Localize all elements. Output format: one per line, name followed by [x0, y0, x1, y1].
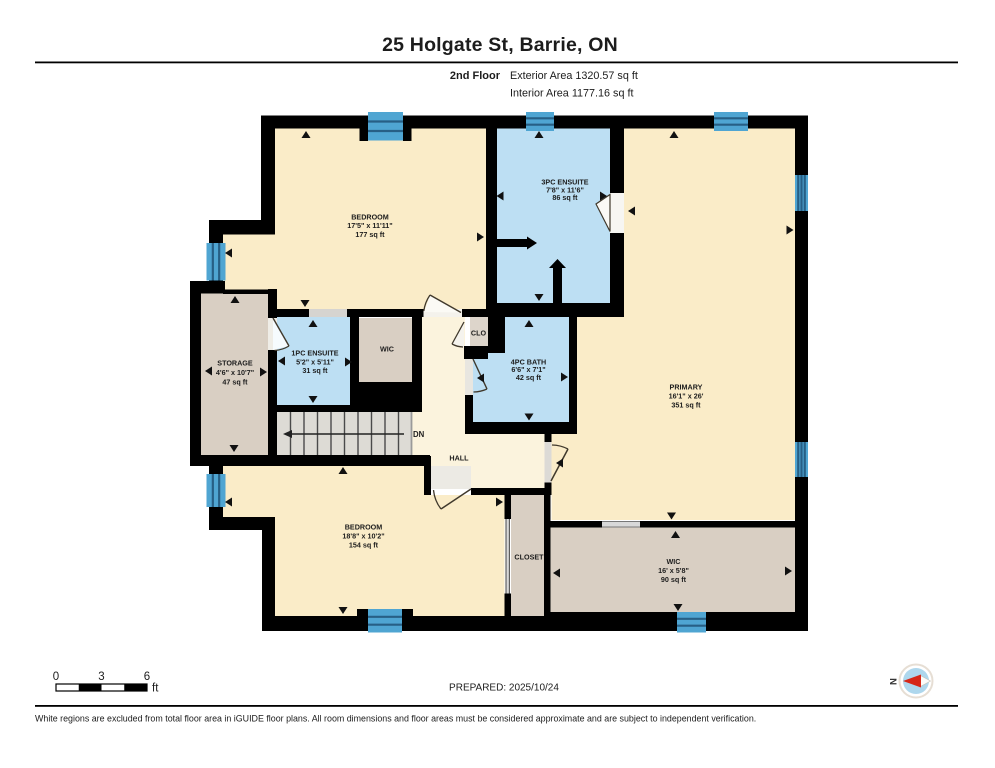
svg-text:16'1" x 26': 16'1" x 26'	[669, 392, 704, 401]
svg-text:90 sq ft: 90 sq ft	[661, 575, 687, 584]
svg-text:WIC: WIC	[667, 557, 681, 566]
svg-text:47 sq ft: 47 sq ft	[222, 377, 248, 386]
svg-text:PRIMARY: PRIMARY	[670, 383, 703, 392]
svg-text:WIC: WIC	[380, 345, 394, 354]
svg-text:CLO: CLO	[471, 329, 487, 338]
svg-text:1PC ENSUITE: 1PC ENSUITE	[291, 349, 338, 358]
svg-text:White regions are excluded fro: White regions are excluded from total fl…	[35, 714, 756, 724]
svg-text:ft: ft	[152, 683, 159, 695]
svg-text:31 sq ft: 31 sq ft	[302, 366, 328, 375]
svg-text:HALL: HALL	[449, 454, 469, 463]
svg-text:2nd Floor: 2nd Floor	[450, 70, 501, 82]
svg-text:25 Holgate St, Barrie, ON: 25 Holgate St, Barrie, ON	[382, 34, 618, 56]
svg-text:N: N	[889, 678, 900, 685]
svg-text:5'2" x 5'11": 5'2" x 5'11"	[296, 357, 334, 366]
svg-text:PREPARED: 2025/10/24: PREPARED: 2025/10/24	[449, 683, 559, 694]
svg-text:177 sq ft: 177 sq ft	[355, 230, 385, 239]
svg-text:CLOSET: CLOSET	[514, 553, 544, 562]
svg-text:Interior Area 1177.16 sq ft: Interior Area 1177.16 sq ft	[510, 88, 633, 100]
svg-text:16' x 5'8": 16' x 5'8"	[658, 566, 689, 575]
svg-text:BEDROOM: BEDROOM	[345, 523, 383, 532]
svg-text:STORAGE: STORAGE	[217, 359, 253, 368]
svg-text:4'6" x 10'7": 4'6" x 10'7"	[216, 368, 254, 377]
svg-text:3: 3	[98, 671, 104, 683]
svg-text:6: 6	[144, 671, 150, 683]
svg-text:351 sq ft: 351 sq ft	[671, 401, 701, 410]
svg-text:86 sq ft: 86 sq ft	[552, 193, 578, 202]
svg-text:Exterior Area 1320.57 sq ft: Exterior Area 1320.57 sq ft	[510, 70, 638, 82]
svg-text:18'8" x 10'2": 18'8" x 10'2"	[342, 532, 384, 541]
svg-text:154 sq ft: 154 sq ft	[349, 541, 379, 550]
svg-text:0: 0	[53, 671, 59, 683]
svg-text:DN: DN	[413, 430, 425, 439]
svg-text:42 sq ft: 42 sq ft	[516, 373, 542, 382]
